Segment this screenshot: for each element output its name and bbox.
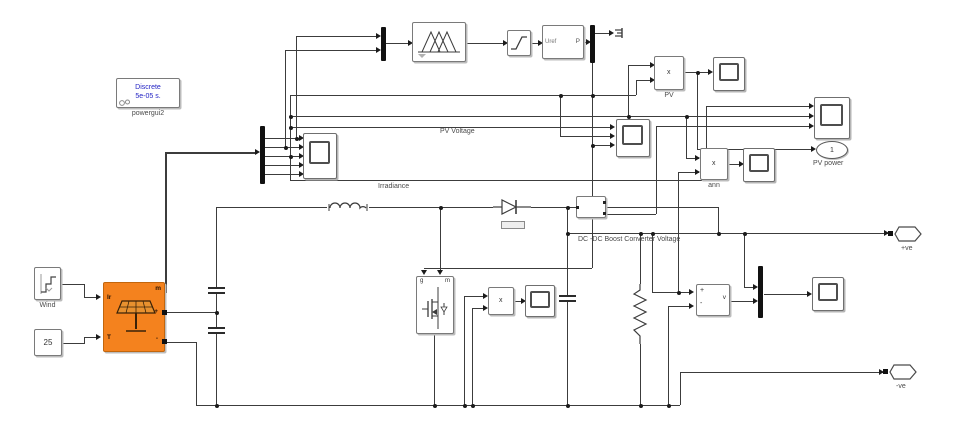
pv-array-port-ir: Ir: [107, 294, 111, 301]
port-negative-terminal: [883, 369, 888, 374]
temperature-constant-block[interactable]: 25: [34, 329, 62, 356]
arrowhead: [689, 303, 694, 309]
wire-junction: [717, 232, 721, 236]
pv-array-minus-terminal: [162, 339, 167, 344]
constant-value: 25: [44, 338, 53, 347]
powergui-label: powergui2: [116, 110, 180, 117]
wire: [680, 372, 681, 405]
wire-junction: [743, 232, 747, 236]
pwm-generator-block[interactable]: Uref P: [542, 25, 584, 59]
wire-junction: [639, 232, 643, 236]
wind-source-label: Wind: [34, 302, 61, 309]
scope-mosfet[interactable]: [525, 285, 555, 317]
wire-junction: [284, 146, 288, 150]
wire-label-boost-voltage: DC -DC Boost Converter Voltage: [578, 236, 680, 243]
scope-top-right[interactable]: [814, 97, 850, 139]
demux-pwm[interactable]: [590, 25, 595, 63]
wire-junction: [566, 232, 570, 236]
mux-fuzzy-inputs[interactable]: [381, 27, 386, 61]
wire: [285, 50, 378, 51]
vmeas-output: v: [723, 294, 726, 301]
wire: [706, 106, 811, 107]
wire: [567, 233, 889, 234]
wire-junction: [591, 94, 595, 98]
voltage-measurement-block[interactable]: + - v: [696, 284, 730, 316]
arrowhead: [437, 270, 443, 275]
demux-pv-bus[interactable]: [260, 126, 265, 184]
wire-junction: [591, 144, 595, 148]
arrowhead: [96, 334, 101, 340]
wire: [697, 72, 698, 149]
pwm-input-label: Uref: [545, 39, 556, 45]
wire-junction: [289, 155, 293, 159]
wire: [678, 172, 679, 292]
arrowhead: [610, 124, 615, 130]
wind-source-block[interactable]: [34, 267, 61, 300]
product-pv-block[interactable]: x: [654, 56, 684, 90]
mosfet-block[interactable]: g m: [416, 276, 454, 334]
wire: [61, 284, 84, 285]
membership-functions-icon: [414, 24, 464, 60]
product-pv-symbol: x: [667, 69, 671, 76]
wire: [464, 296, 465, 405]
capacitor-output[interactable]: [559, 295, 576, 302]
port-positive-label: +ve: [901, 245, 912, 252]
saturation-icon: [508, 31, 530, 55]
inductor-icon[interactable]: [327, 199, 369, 213]
wire: [165, 312, 216, 313]
wire: [464, 296, 484, 297]
wire: [386, 43, 410, 44]
arrowhead: [689, 289, 694, 295]
wire: [628, 65, 629, 116]
wire-junction: [677, 291, 681, 295]
arrowhead: [421, 270, 427, 275]
wire: [764, 294, 809, 295]
wire: [560, 95, 561, 136]
port-positive[interactable]: 1: [894, 226, 922, 242]
scope-output[interactable]: [812, 277, 844, 311]
mux-output-voltage[interactable]: [758, 266, 763, 318]
wire: [296, 36, 378, 37]
arrowhead: [610, 133, 615, 139]
arrowhead: [96, 294, 101, 300]
capacitor-input-2[interactable]: [208, 327, 225, 334]
wire: [595, 33, 610, 34]
wire-junction: [566, 404, 570, 408]
wire: [62, 343, 84, 344]
product-ann-label: ann: [700, 182, 728, 189]
product-ann-symbol: x: [712, 160, 716, 167]
wire: [216, 207, 330, 208]
terminator-icon[interactable]: [612, 26, 626, 40]
fuzzy-logic-controller-block[interactable]: [412, 22, 466, 62]
wire: [290, 95, 636, 96]
wire: [265, 165, 300, 166]
wire: [731, 301, 755, 302]
product-mosfet-symbol: x: [499, 297, 503, 304]
wire: [196, 342, 197, 405]
arrowhead: [610, 142, 615, 148]
wire: [165, 152, 167, 293]
current-measurement-block[interactable]: [576, 196, 606, 218]
wire: [216, 207, 217, 405]
wire-junction: [463, 404, 467, 408]
wire-junction: [667, 404, 671, 408]
wire: [196, 405, 680, 406]
port-negative-label: -ve: [896, 383, 906, 390]
wire: [165, 152, 257, 154]
outport-pv-power-label: PV power: [813, 160, 843, 167]
wire: [290, 180, 706, 181]
product-mosfet-block[interactable]: x: [488, 287, 514, 315]
powergui-block[interactable]: Discrete 5e-05 s.: [116, 78, 180, 108]
pv-array-plus-terminal: [162, 310, 167, 315]
capacitor-input-1[interactable]: [208, 287, 225, 294]
port-positive-terminal: [888, 231, 893, 236]
scope-pv-measurements[interactable]: [303, 133, 337, 179]
wire: [656, 126, 657, 214]
wire-junction: [215, 404, 219, 408]
wire-label-pv-voltage: PV Voltage: [440, 128, 475, 135]
wire: [652, 292, 691, 293]
wire-junction: [639, 404, 643, 408]
diode-icon[interactable]: [493, 197, 531, 217]
wire: [290, 116, 811, 117]
wire-junction: [433, 404, 437, 408]
wire-junction: [566, 206, 570, 210]
wire: [606, 207, 718, 208]
wire: [265, 156, 300, 157]
wire: [84, 337, 85, 344]
mosfet-icon: [418, 285, 452, 333]
saturation-block[interactable]: [507, 30, 531, 56]
wire-label-irradiance: Irradiance: [378, 183, 409, 190]
wire: [560, 136, 612, 137]
scope-ann[interactable]: [743, 148, 775, 182]
wire: [592, 145, 612, 146]
solar-panel-icon: [112, 295, 160, 341]
step-signal-icon: [37, 270, 60, 297]
wire: [84, 284, 85, 297]
wire-junction: [295, 137, 299, 141]
outport-pv-power-number: 1: [830, 147, 834, 154]
product-ann-block[interactable]: x: [700, 148, 728, 180]
powergui-mode: Discrete: [117, 83, 179, 92]
wire: [366, 207, 494, 208]
wire: [656, 126, 811, 127]
wire-junction: [215, 311, 219, 315]
wire: [744, 233, 745, 287]
wire: [165, 342, 196, 343]
wire: [686, 116, 687, 158]
wire: [472, 308, 473, 405]
outport-pv-power[interactable]: 1: [816, 141, 848, 159]
wire: [668, 306, 669, 405]
wire-junction: [696, 71, 700, 75]
wire-junction: [289, 126, 293, 130]
wire-junction: [651, 232, 655, 236]
port-negative[interactable]: 2: [889, 364, 917, 380]
wire: [628, 65, 652, 66]
wire: [640, 342, 641, 405]
wire: [718, 207, 719, 233]
vmeas-minus: -: [700, 300, 702, 307]
pv-array-port-t: T: [107, 334, 111, 341]
wire: [440, 207, 441, 271]
mosfet-gate-port: g: [420, 278, 423, 284]
wire: [265, 147, 300, 148]
wire: [285, 50, 286, 147]
wire: [680, 372, 884, 373]
wire: [668, 306, 691, 307]
vmeas-plus: +: [700, 287, 704, 294]
scope-pv-power[interactable]: [713, 57, 745, 91]
pv-array-port-m: m: [155, 285, 161, 292]
mosfet-measurement-port: m: [445, 278, 450, 284]
simulink-model-canvas: Discrete 5e-05 s. powergui2 Wind 25 Ir T…: [0, 0, 964, 426]
wire-junction: [559, 94, 563, 98]
pv-array-block[interactable]: Ir T m + -: [103, 282, 165, 352]
wire: [296, 36, 297, 138]
wire: [265, 174, 300, 175]
wire: [466, 43, 505, 44]
wire-junction: [289, 115, 293, 119]
wire: [567, 207, 568, 405]
diode-snubber: [501, 221, 525, 229]
wire: [434, 332, 435, 405]
gear-icon: [119, 99, 131, 107]
wire: [636, 80, 637, 95]
wire-junction: [439, 206, 443, 210]
wire: [606, 214, 656, 215]
product-pv-label: PV: [654, 92, 684, 99]
wire-junction: [471, 404, 475, 408]
resistor-icon[interactable]: [631, 284, 649, 344]
pwm-output-label: P: [576, 38, 580, 45]
wire: [290, 95, 291, 180]
scope-mid[interactable]: [616, 119, 650, 157]
wire-junction: [627, 115, 631, 119]
wire-junction: [685, 115, 689, 119]
